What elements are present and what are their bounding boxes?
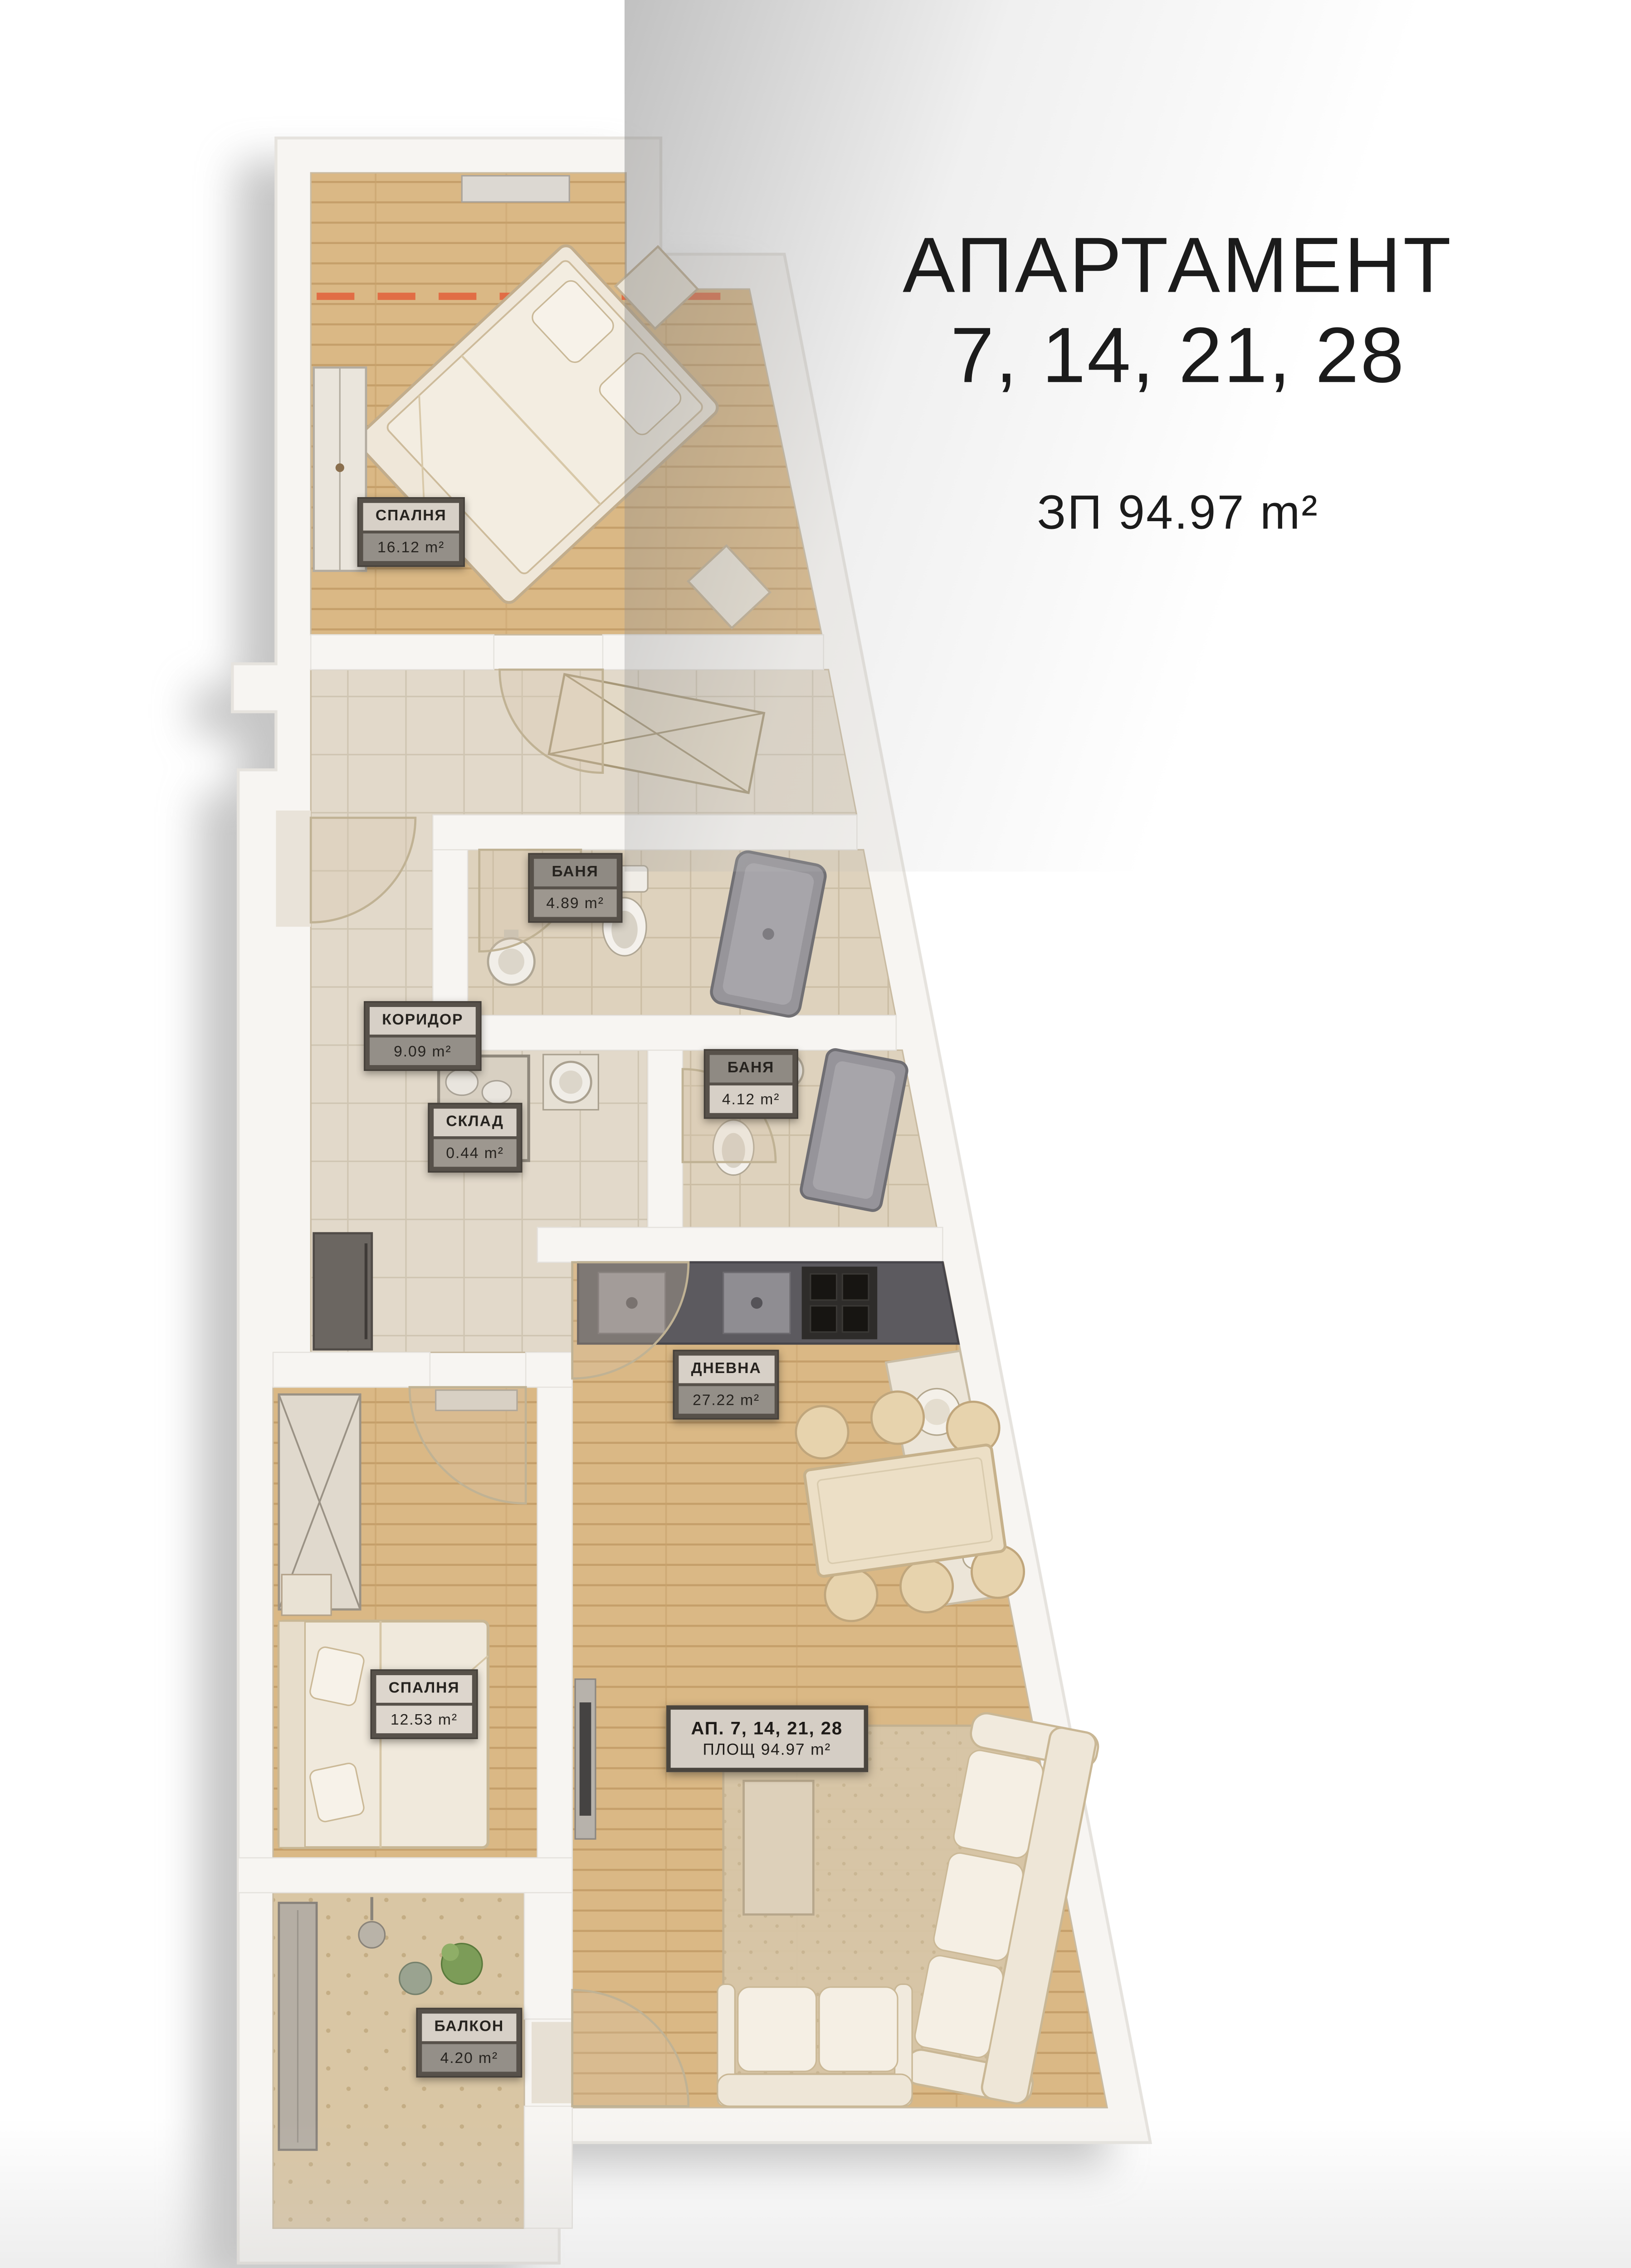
page: АПАРТАМЕНТ 7, 14, 21, 28 ЗП 94.97 m² СПА… — [0, 0, 1631, 2268]
chair — [900, 1560, 952, 1612]
room-label-bedroom-2: СПАЛНЯ 12.53 m² — [371, 1669, 478, 1738]
balcony-threshold — [532, 2022, 572, 2103]
tv-console — [575, 1679, 596, 1839]
title-line-1: АПАРТАМЕНТ — [903, 221, 1453, 311]
apartment-badge-area: ПЛОЩ 94.97 m² — [691, 1742, 843, 1759]
room-label-balcony: БАЛКОН 4.20 m² — [416, 2008, 522, 2077]
room-label-storage: СКЛАД 0.44 m² — [428, 1103, 522, 1172]
corridor-cabinet — [314, 1233, 372, 1349]
room-label-corridor: КОРИДОР 9.09 m² — [364, 1001, 481, 1070]
nightstand-3 — [282, 1574, 331, 1615]
room-label-bedroom-1: СПАЛНЯ 16.12 m² — [357, 497, 465, 566]
title-line-2: 7, 14, 21, 28 — [903, 311, 1453, 401]
chair — [796, 1406, 848, 1458]
room-label-bathroom-2: БАНЯ 4.12 m² — [704, 1049, 798, 1118]
plant — [400, 1962, 431, 1994]
chair — [871, 1392, 923, 1444]
stove — [802, 1266, 878, 1339]
vent — [462, 176, 569, 202]
chair — [825, 1569, 877, 1621]
coffee-table — [744, 1781, 814, 1915]
apartment-badge: АП. 7, 14, 21, 28 ПЛОЩ 94.97 m² — [666, 1706, 868, 1772]
hanging-decor — [359, 1922, 385, 1948]
page-title: АПАРТАМЕНТ 7, 14, 21, 28 ЗП 94.97 m² — [903, 221, 1453, 541]
loveseat — [718, 1984, 912, 2106]
title-area: ЗП 94.97 m² — [903, 485, 1453, 541]
hall-sink — [543, 1055, 599, 1110]
dining-set — [796, 1392, 1024, 1621]
apartment-badge-title: АП. 7, 14, 21, 28 — [691, 1718, 843, 1739]
entry-threshold — [276, 811, 311, 927]
room-label-bathroom-1: БАНЯ 4.89 m² — [528, 853, 622, 922]
room-label-living-room: ДНЕВНА 27.22 m² — [673, 1350, 780, 1419]
